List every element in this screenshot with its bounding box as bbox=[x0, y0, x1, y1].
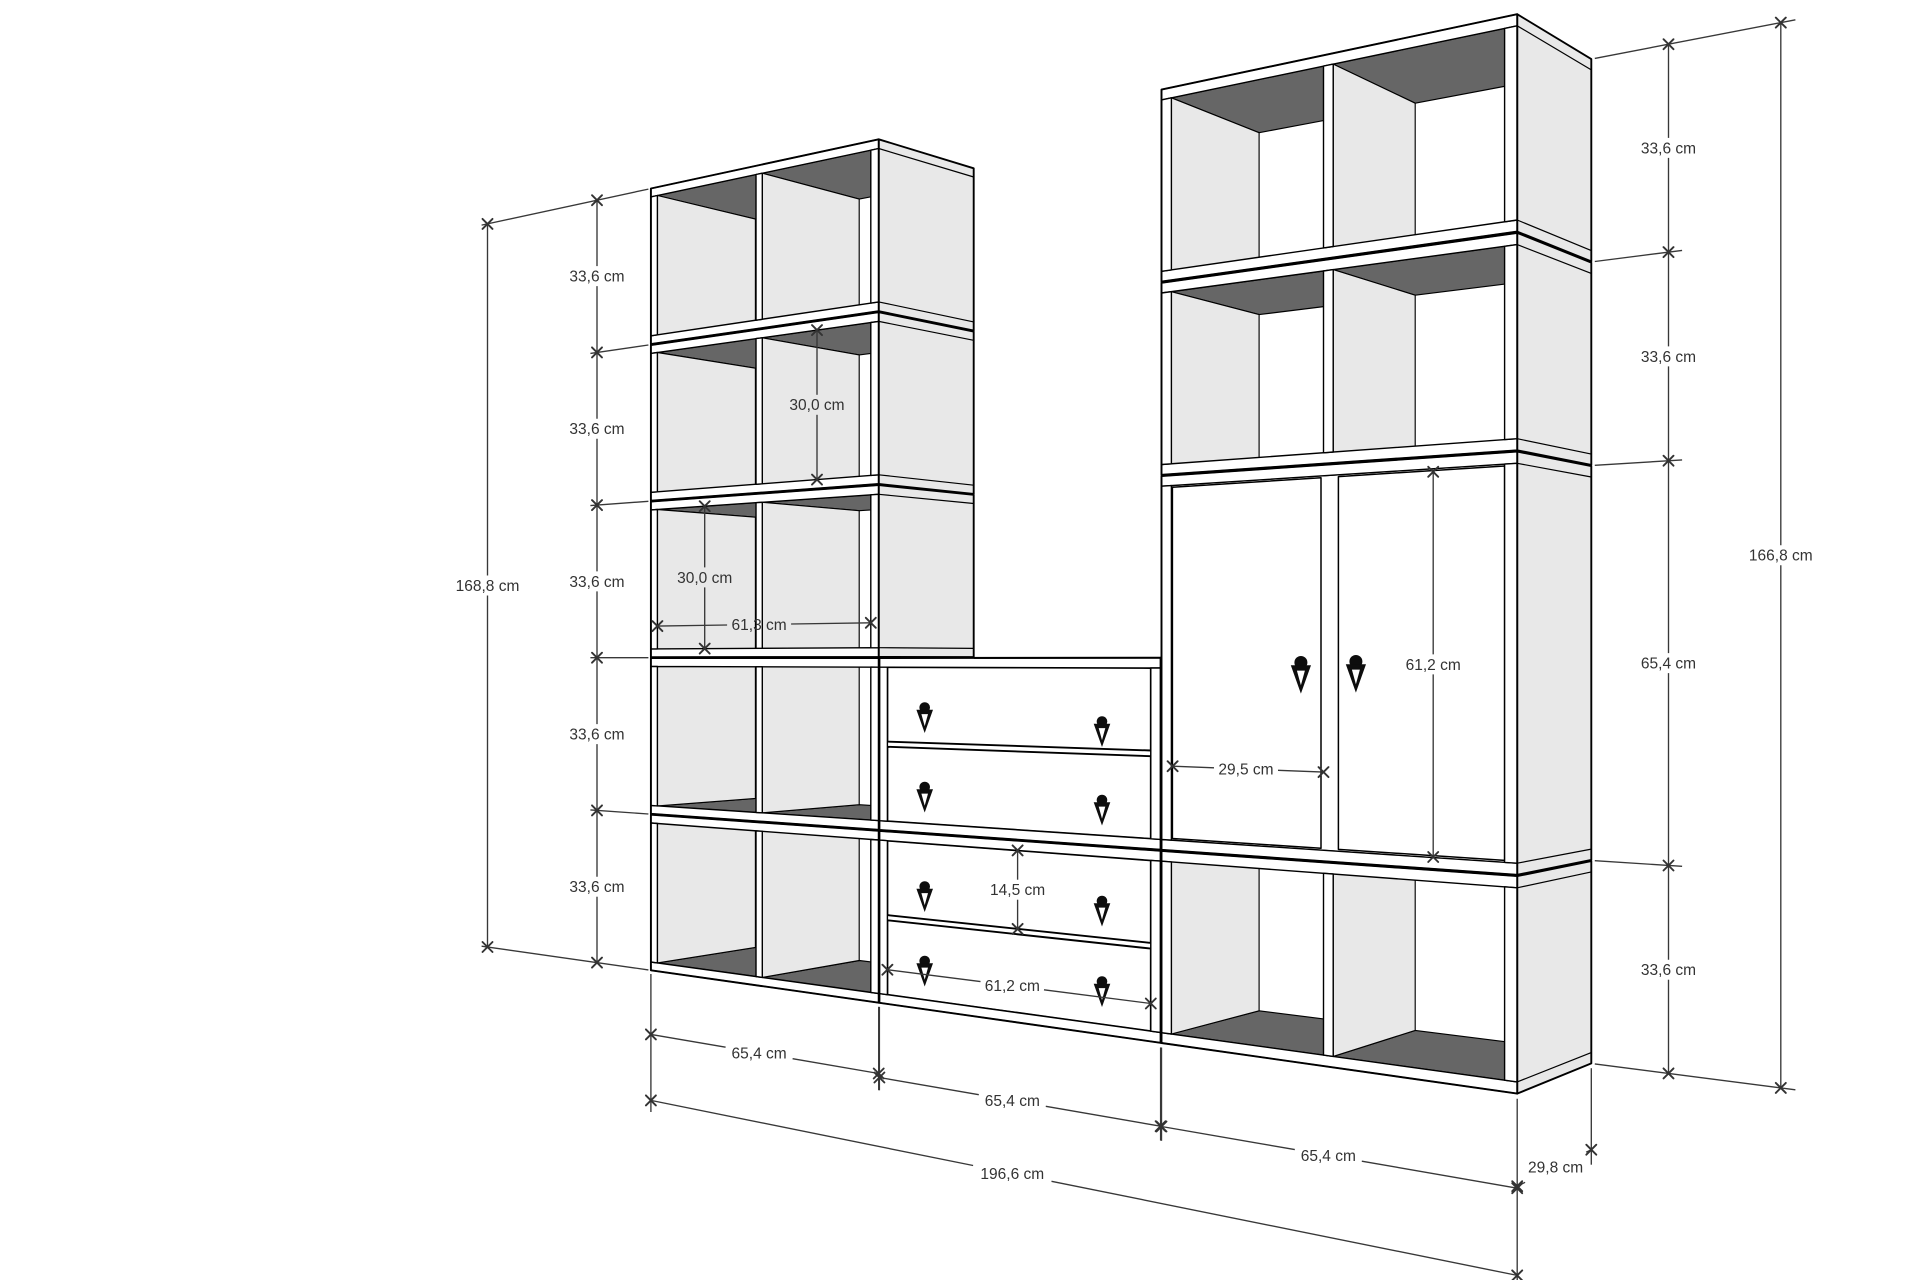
svg-text:33,6 cm: 33,6 cm bbox=[1641, 140, 1696, 157]
svg-text:61,2 cm: 61,2 cm bbox=[985, 978, 1040, 995]
svg-text:61,2 cm: 61,2 cm bbox=[1406, 657, 1461, 674]
svg-text:65,4 cm: 65,4 cm bbox=[985, 1093, 1040, 1110]
svg-text:33,6 cm: 33,6 cm bbox=[569, 269, 624, 286]
svg-text:30,0 cm: 30,0 cm bbox=[677, 570, 732, 587]
svg-text:196,6 cm: 196,6 cm bbox=[980, 1166, 1044, 1183]
svg-text:29,8 cm: 29,8 cm bbox=[1528, 1160, 1583, 1177]
svg-text:61,3 cm: 61,3 cm bbox=[732, 617, 787, 634]
svg-text:29,5 cm: 29,5 cm bbox=[1218, 762, 1273, 779]
svg-text:65,4 cm: 65,4 cm bbox=[1301, 1148, 1356, 1165]
svg-text:65,4 cm: 65,4 cm bbox=[732, 1045, 787, 1062]
svg-text:33,6 cm: 33,6 cm bbox=[1641, 962, 1696, 979]
svg-text:33,6 cm: 33,6 cm bbox=[569, 574, 624, 591]
svg-text:33,6 cm: 33,6 cm bbox=[569, 727, 624, 744]
svg-text:33,6 cm: 33,6 cm bbox=[569, 421, 624, 438]
svg-text:168,8 cm: 168,8 cm bbox=[456, 578, 520, 595]
svg-text:33,6 cm: 33,6 cm bbox=[569, 879, 624, 896]
svg-text:30,0 cm: 30,0 cm bbox=[789, 397, 844, 414]
svg-text:33,6 cm: 33,6 cm bbox=[1641, 349, 1696, 366]
svg-text:14,5 cm: 14,5 cm bbox=[990, 882, 1045, 899]
svg-text:65,4 cm: 65,4 cm bbox=[1641, 656, 1696, 673]
svg-text:166,8 cm: 166,8 cm bbox=[1749, 548, 1813, 565]
